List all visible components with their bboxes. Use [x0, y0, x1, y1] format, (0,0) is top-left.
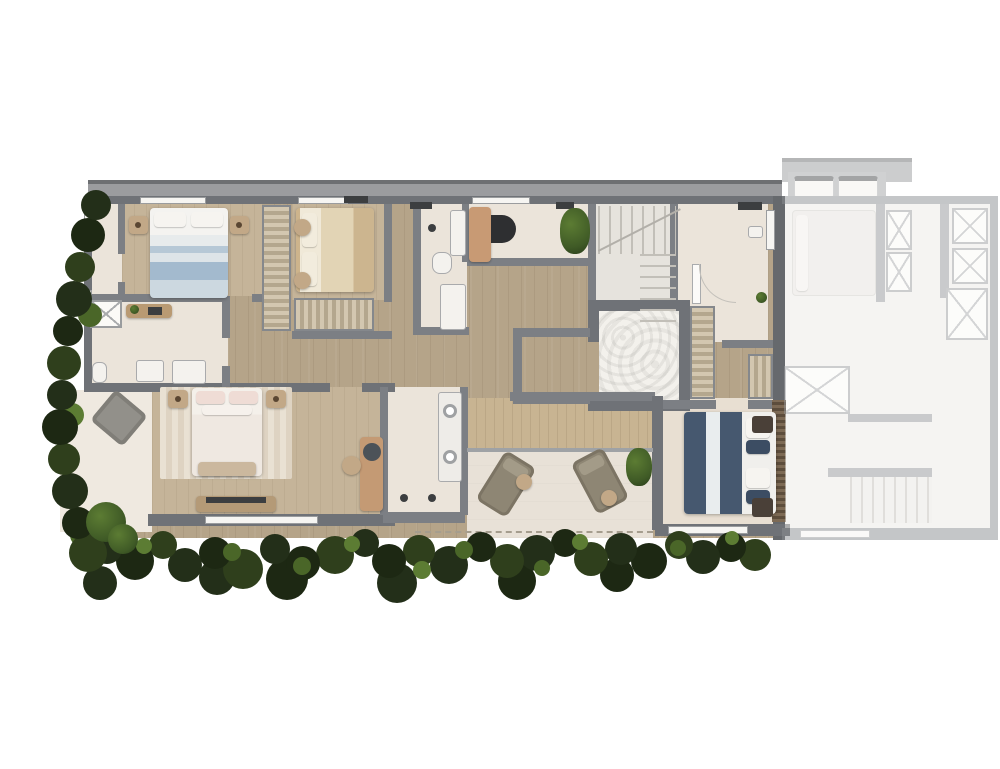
balcony-planter-shrub-2 [108, 524, 138, 554]
wall-bathleft-right-a [222, 296, 230, 338]
lamp-icon [135, 222, 141, 228]
shower-room-wall-right [679, 300, 690, 411]
window-left-1 [84, 210, 92, 250]
floorplan-canvas [0, 0, 1000, 769]
window-master-bottom [205, 516, 318, 524]
vestibule-wall-top [513, 328, 590, 337]
neighbor-wall-inner-2 [940, 204, 949, 298]
master-bench [198, 462, 256, 476]
toilet-left-bath [92, 362, 107, 383]
basin-left-bath-1 [136, 360, 164, 382]
neighbor-wall-stub-2 [828, 468, 932, 477]
neighbor-closet-5 [946, 288, 988, 340]
masterbath-drain-2 [428, 494, 436, 502]
bedroom1-bed [150, 208, 228, 298]
wall-bathleft-right-b [222, 366, 230, 388]
bedroom1-pillow-left [154, 212, 186, 227]
neighbor-stairs [850, 477, 932, 523]
bathtop-drain [428, 224, 436, 232]
vent-top-1 [344, 196, 368, 203]
bathtop-vanity [450, 210, 466, 256]
master-pillow-1 [196, 391, 225, 404]
bedroom3-nightstand-bottom [752, 498, 773, 517]
lamp-icon [273, 396, 279, 402]
neighbor-bed-pillows [796, 215, 808, 291]
wall-utility-bottom-b [722, 340, 773, 348]
terrace-side-table-2 [601, 490, 617, 506]
bedroom3-duvet [684, 412, 742, 514]
basin-left-bath-2 [172, 360, 206, 384]
window-top-bedroom1 [140, 197, 206, 204]
wall-bath1-a [118, 204, 125, 254]
masterbath-sink-2 [443, 450, 457, 464]
neighbor-wall-top [782, 196, 998, 204]
bedroom1-nightstand-right [230, 216, 249, 234]
bathtop-toilet [432, 252, 452, 274]
wardrobe-bedroom3-top [748, 354, 773, 399]
utility-plant [756, 292, 767, 303]
shower-box-left-bath [90, 300, 122, 328]
utility-appliance [748, 226, 763, 238]
bedroom1-pillow-right [191, 212, 223, 227]
neighbor-window-bottom [800, 530, 870, 538]
window-utility-right [766, 210, 775, 250]
wall-bathtop-left [413, 204, 421, 335]
neighbor-wall-stub-1 [848, 414, 932, 422]
window-bedroom3-bottom [668, 526, 748, 534]
master-nightstand-right [266, 390, 286, 408]
wall-bedroom1-bottom-b [252, 294, 262, 302]
bedroom2-pouf-top [294, 219, 311, 236]
ac-unit-1 [794, 176, 834, 198]
wardrobe-hall [690, 306, 715, 399]
neighbor-closet-4 [952, 248, 988, 284]
left-bath-plant [130, 305, 139, 314]
bedroom1-nightstand-left [129, 216, 148, 234]
roof-overhang-dashed-line [415, 531, 653, 533]
wall-terrace-bedroom3 [652, 396, 663, 530]
neighbor-shaft [784, 366, 850, 414]
lamp-icon [236, 222, 242, 228]
study-plant [560, 208, 590, 254]
neighbor-wall-inner-1 [876, 204, 885, 302]
master-vanity-stool [342, 456, 361, 475]
wall-bedroom3-top-a [663, 400, 716, 409]
hedge-left [50, 185, 70, 205]
wall-hall-terrace [510, 392, 655, 401]
master-pillow-2 [229, 391, 258, 404]
neighbor-closet-1 [886, 210, 912, 250]
neighbor-bed [792, 210, 876, 296]
master-tv [206, 497, 266, 503]
stairs-lower-flight [640, 254, 676, 330]
masterbath-drain-1 [400, 494, 408, 502]
wall-bedroom2-right [384, 204, 392, 302]
bedroom3-pillow-2 [746, 468, 770, 488]
masterbath-sink-1 [443, 404, 457, 418]
bedroom2-pouf-bottom [294, 272, 311, 289]
neighbor-wall-right [990, 196, 998, 540]
wall-bedroom2-bottom [292, 331, 392, 339]
left-bath-sink [148, 307, 162, 315]
lamp-icon [175, 396, 181, 402]
study-desk [469, 207, 491, 262]
terrace-railing [467, 448, 653, 452]
terrace-side-table-1 [516, 474, 532, 490]
master-nightstand-left [168, 390, 188, 408]
wall-bedroom3-top-b [748, 400, 775, 409]
neighbor-closet-2 [886, 252, 912, 292]
bedroom3-nightstand-top [752, 416, 773, 433]
window-top-study [472, 197, 530, 204]
window-top-bedroom2 [298, 197, 348, 204]
master-pillow-3 [202, 405, 252, 415]
vent-top-2 [410, 202, 432, 209]
bedroom3-cushion-1 [746, 440, 770, 454]
terrace-plant [626, 448, 652, 486]
wall-master-top-b [362, 383, 395, 392]
wall-masterbath-bottom [383, 512, 465, 523]
wardrobe-bedroom2 [294, 298, 374, 331]
wardrobe-bedroom1 [262, 205, 291, 331]
ac-unit-2 [838, 176, 878, 198]
neighbor-closet-3 [952, 208, 988, 244]
bathtop-counter [440, 284, 466, 330]
vent-top-4 [738, 202, 762, 210]
master-vanity-mirror [363, 443, 381, 461]
